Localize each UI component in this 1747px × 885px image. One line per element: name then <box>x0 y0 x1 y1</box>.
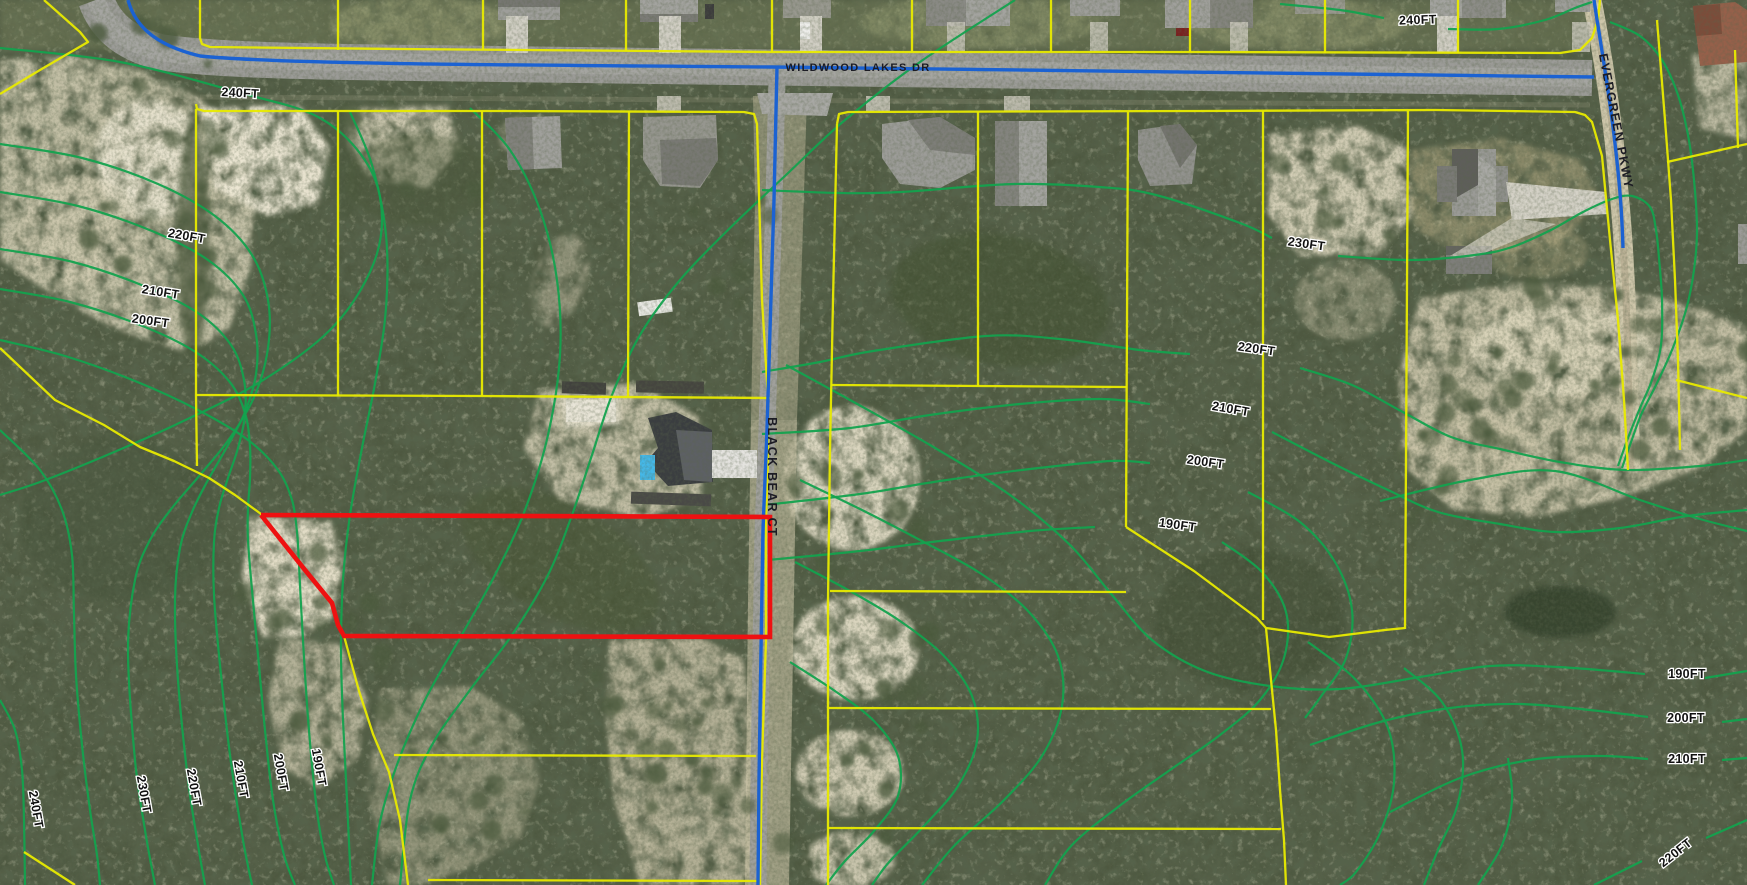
svg-text:200FT: 200FT <box>1667 711 1705 725</box>
svg-text:BLACK BEAR CT: BLACK BEAR CT <box>765 417 779 537</box>
svg-text:WILDWOOD LAKES DR: WILDWOOD LAKES DR <box>786 62 931 74</box>
svg-text:240FT: 240FT <box>1399 12 1437 27</box>
svg-text:210FT: 210FT <box>1668 752 1706 766</box>
svg-text:240FT: 240FT <box>221 85 259 101</box>
svg-text:190FT: 190FT <box>1668 667 1706 681</box>
